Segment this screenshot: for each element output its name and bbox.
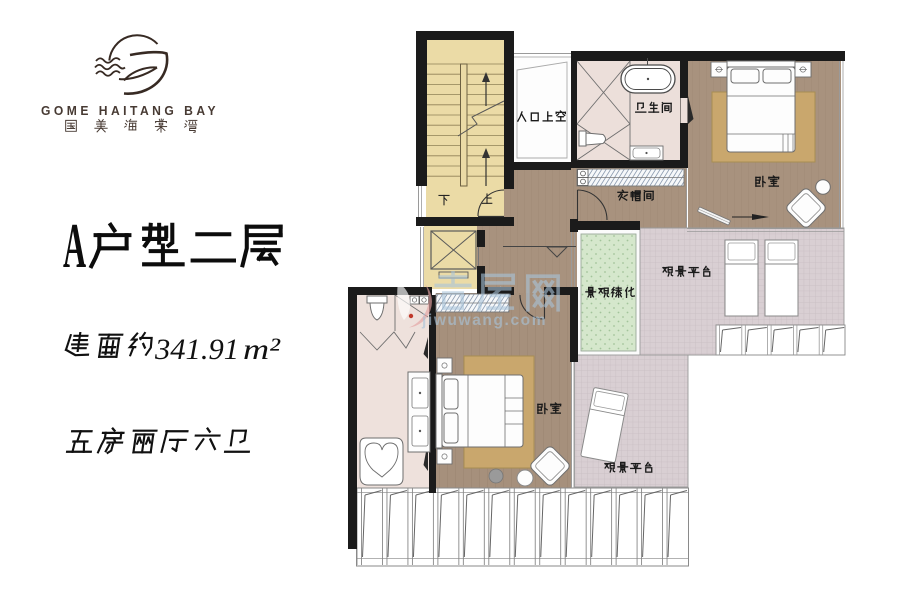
svg-text:A: A (63, 210, 86, 281)
svg-text:341.91: 341.91 (154, 333, 239, 366)
svg-text:m²: m² (243, 333, 281, 366)
svg-text:jiwuwang.com: jiwuwang.com (421, 312, 547, 329)
svg-text:GOME HAITANG BAY: GOME HAITANG BAY (41, 104, 219, 118)
